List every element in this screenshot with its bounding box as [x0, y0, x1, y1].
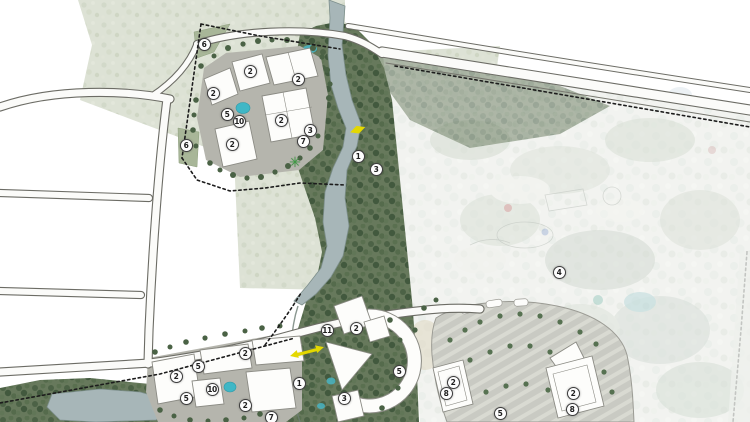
map-marker-5: 5: [221, 108, 234, 121]
map-marker-2: 2: [170, 370, 183, 383]
map-marker-11: 11: [321, 324, 334, 337]
map-marker-2: 2: [207, 87, 220, 100]
map-marker-3: 3: [338, 392, 351, 405]
map-marker-2: 2: [239, 347, 252, 360]
map-marker-8: 8: [566, 403, 579, 416]
map-marker-2: 2: [567, 387, 580, 400]
map-marker-1: 1: [352, 150, 365, 163]
site-plan-map: 6222510237261341122521052713552828✳: [0, 0, 750, 422]
map-marker-2: 2: [244, 65, 257, 78]
map-marker-6: 6: [180, 139, 193, 152]
map-marker-8: 8: [440, 387, 453, 400]
map-marker-2: 2: [226, 138, 239, 151]
marker-layer: 6222510237261341122521052713552828✳: [0, 0, 750, 422]
star-icon: ✳: [289, 156, 301, 170]
map-marker-2: 2: [239, 399, 252, 412]
map-marker-2: 2: [350, 322, 363, 335]
map-marker-5: 5: [494, 407, 507, 420]
map-marker-2: 2: [275, 114, 288, 127]
map-marker-2: 2: [292, 73, 305, 86]
map-marker-5: 5: [192, 360, 205, 373]
map-marker-5: 5: [180, 392, 193, 405]
connection-arrow-icon: [353, 127, 362, 132]
map-marker-7: 7: [265, 411, 278, 422]
map-marker-10: 10: [206, 383, 219, 396]
map-marker-5: 5: [393, 365, 406, 378]
connection-arrow-icon: [293, 347, 320, 356]
map-marker-10: 10: [233, 115, 246, 128]
map-marker-1: 1: [293, 377, 306, 390]
map-marker-6: 6: [198, 38, 211, 51]
map-marker-4: 4: [553, 266, 566, 279]
map-marker-3: 3: [370, 163, 383, 176]
map-marker-7: 7: [297, 135, 310, 148]
